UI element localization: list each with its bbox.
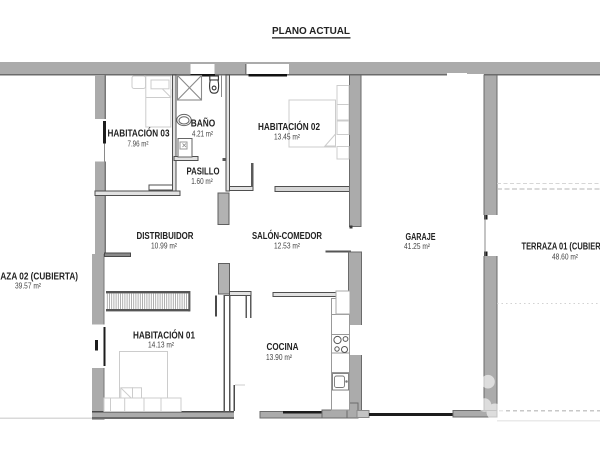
svg-text:7.96 m²: 7.96 m²	[128, 140, 149, 149]
svg-text:PLANO ACTUAL: PLANO ACTUAL	[272, 26, 350, 37]
svg-text:12.53 m²: 12.53 m²	[274, 242, 300, 251]
svg-text:41.25 m²: 41.25 m²	[404, 242, 430, 251]
svg-text:10.99 m²: 10.99 m²	[151, 242, 177, 251]
svg-text:BAÑO: BAÑO	[191, 117, 216, 130]
svg-text:HABITACIÓN 03: HABITACIÓN 03	[108, 127, 170, 140]
svg-text:13.90 m²: 13.90 m²	[266, 353, 292, 362]
svg-text:COCINA: COCINA	[267, 342, 299, 353]
svg-text:1.60 m²: 1.60 m²	[191, 177, 213, 186]
svg-text:14.13 m²: 14.13 m²	[148, 341, 174, 350]
svg-text:SALÓN-COMEDOR: SALÓN-COMEDOR	[252, 229, 323, 242]
svg-text:PASILLO: PASILLO	[187, 167, 220, 178]
svg-text:13.45 m²: 13.45 m²	[274, 133, 300, 142]
svg-text:HABITACIÓN 02: HABITACIÓN 02	[258, 120, 320, 133]
svg-text:TERRAZA 01 (CUBIERTA): TERRAZA 01 (CUBIERTA)	[522, 242, 600, 253]
svg-text:DISTRIBUIDOR: DISTRIBUIDOR	[137, 231, 195, 242]
svg-text:4.21 m²: 4.21 m²	[192, 130, 213, 139]
svg-text:39.57 m²: 39.57 m²	[15, 282, 41, 291]
svg-text:48.60 m²: 48.60 m²	[552, 253, 578, 262]
